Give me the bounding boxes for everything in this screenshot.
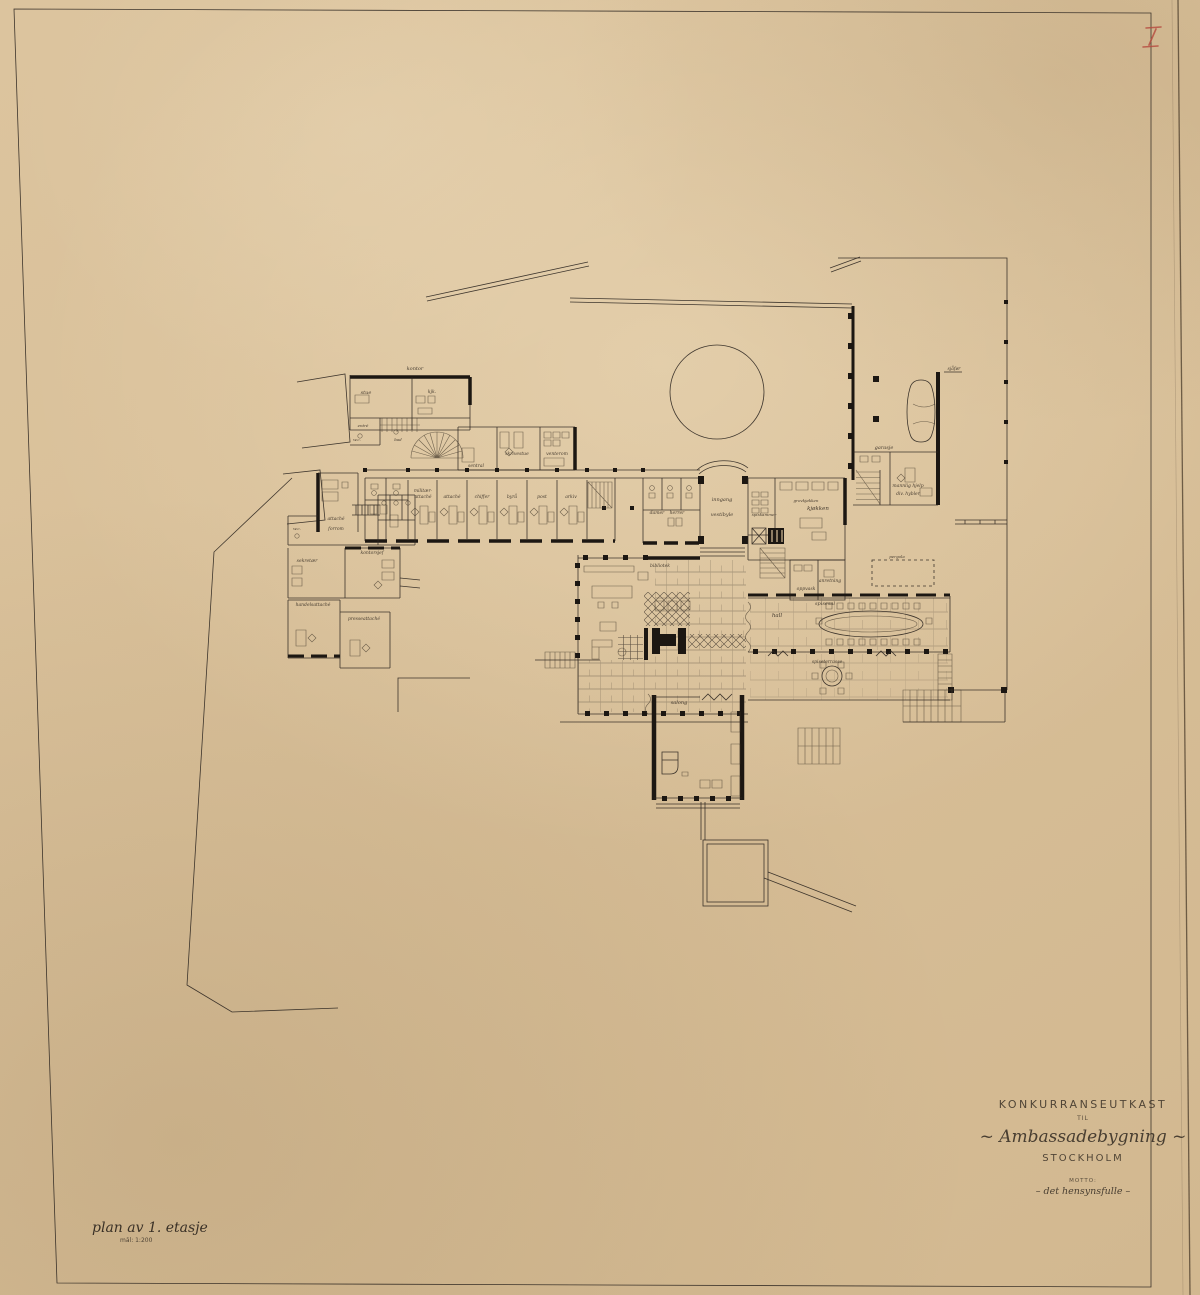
room-label: kjøkken <box>807 506 829 512</box>
title-line-embassy: ~ Ambassadebygning ~ <box>968 1127 1198 1147</box>
sheet-number-numeral <box>1143 27 1161 47</box>
title-line-til: TIL <box>968 1115 1198 1122</box>
room-label: skrivestue <box>505 451 529 457</box>
room-label: militær- <box>414 488 433 494</box>
room-label: sentral <box>468 463 485 469</box>
room-label: attaché <box>443 493 460 500</box>
room-label: entré <box>358 423 369 428</box>
room-label: presseattaché <box>348 615 380 622</box>
room-label: vestibyle <box>711 512 734 518</box>
room-label: attaché <box>414 493 431 500</box>
room-label: byrå <box>507 493 518 500</box>
room-label: forrom <box>327 526 344 532</box>
room-label: pergola <box>889 554 905 559</box>
room-label: chiffer <box>475 494 491 500</box>
room-label: stue <box>361 390 372 396</box>
title-line-motto-label: MOTTO: <box>968 1178 1198 1184</box>
room-label: oppvask <box>797 586 816 592</box>
room-label: spiseterrasse <box>812 659 843 665</box>
room-label: kontorsjef <box>360 550 384 556</box>
title-line-city: STOCKHOLM <box>968 1153 1198 1164</box>
room-label: garasje <box>875 445 894 451</box>
room-label: kontor <box>407 366 424 372</box>
room-label: arkiv <box>565 494 577 500</box>
room-label: spisesal <box>815 601 835 607</box>
title-line-motto: – det hensynsfulle – <box>968 1186 1198 1197</box>
title-block: KONKURRANSEUTKAST TIL ~ Ambassadebygning… <box>968 1098 1198 1197</box>
room-label: post <box>537 494 547 500</box>
room-label: hall <box>772 613 783 619</box>
title-line-competition: KONKURRANSEUTKAST <box>968 1098 1198 1111</box>
room-label: salong <box>671 700 688 706</box>
room-label: anretning <box>819 578 841 584</box>
room-label: damer <box>650 510 665 516</box>
plan-caption: plan av 1. etasje mål: 1:200 <box>92 1220 208 1244</box>
room-label: div. hybler <box>896 491 921 497</box>
furniture <box>292 380 935 796</box>
caption-scale: mål: 1:200 <box>120 1237 208 1244</box>
room-label: sekretær <box>297 558 319 564</box>
room-label: sjåfør <box>948 365 962 372</box>
caption-plan-name: plan av 1. etasje <box>92 1220 208 1236</box>
room-label: bad <box>394 437 402 442</box>
room-label: mannlig hjelp <box>892 483 923 489</box>
room-label: attaché <box>327 515 344 522</box>
room-label: w.c. <box>293 526 301 531</box>
room-label: herrer <box>670 510 686 516</box>
room-label: grovkjøkken <box>793 498 818 503</box>
room-label: spiskammer <box>752 512 778 517</box>
room-label: w.c. <box>353 437 361 442</box>
room-label: bibliotek <box>650 563 670 569</box>
room-label: kjk. <box>428 389 437 395</box>
room-label: inngang <box>712 497 733 503</box>
building-walls <box>288 306 962 808</box>
room-label: venterom <box>546 451 568 457</box>
drawing-sheet: { "sheet": { "number": "I", "caption": {… <box>0 0 1200 1295</box>
room-label: handelsattaché <box>296 601 331 608</box>
